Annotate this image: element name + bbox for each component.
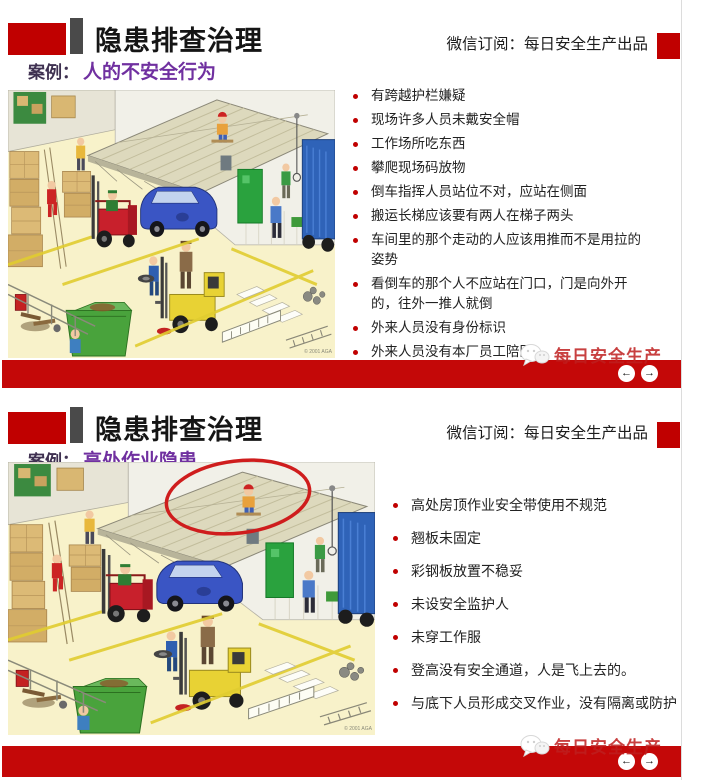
case-line: 案例： 人的不安全行为 <box>28 57 216 84</box>
warehouse-illustration: © 2001 AGA <box>8 462 375 735</box>
bullet-dot-icon <box>393 569 398 574</box>
hazard-text: 彩钢板放置不稳妥 <box>411 561 681 581</box>
header-red-block-right <box>657 33 680 59</box>
hazard-item: 车间里的那个走动的人应该用推而不是用拉的姿势 <box>345 230 650 270</box>
arrow-left-icon: ← <box>621 368 632 379</box>
hazard-item: 搬运长梯应该要有两人在梯子两头 <box>345 206 650 226</box>
hazard-item: 工作场所吃东西 <box>345 134 650 154</box>
hazard-text: 倒车指挥人员站位不对，应站在侧面 <box>371 182 650 202</box>
hazard-text: 看倒车的那个人不应站在门口，门是向外开的，往外一推人就倒 <box>371 274 650 314</box>
prev-button[interactable]: ← <box>618 365 635 382</box>
warehouse-scene-graphic <box>8 90 335 358</box>
hazard-list: 高处房顶作业安全带使用不规范 翘板未固定 彩钢板放置不稳妥 未设安全监护人 未穿… <box>385 495 681 726</box>
hazard-item: 攀爬现场码放物 <box>345 158 650 178</box>
next-button[interactable]: → <box>641 365 658 382</box>
bullet-dot-icon <box>353 166 358 171</box>
header-red-block <box>8 23 66 55</box>
bullet-dot-icon <box>393 503 398 508</box>
bullet-dot-icon <box>353 282 358 287</box>
slide-title: 隐患排查治理 <box>95 408 263 447</box>
hazard-text: 外来人员没有身份标识 <box>371 318 650 338</box>
wechat-icon <box>520 734 550 758</box>
watermark-text: 每日安全生产 <box>554 342 662 367</box>
bullet-dot-icon <box>393 701 398 706</box>
bullet-dot-icon <box>393 668 398 673</box>
bullet-dot-icon <box>353 214 358 219</box>
subscription-note: 微信订阅：每日安全生产出品 <box>430 32 648 54</box>
bullet-dot-icon <box>353 350 358 355</box>
hazard-item: 未设安全监护人 <box>385 594 681 614</box>
hazard-text: 登高没有安全通道，人是飞上去的。 <box>411 660 681 680</box>
hazard-item: 高处房顶作业安全带使用不规范 <box>385 495 681 515</box>
slide-title: 隐患排查治理 <box>95 19 263 58</box>
case-title: 人的不安全行为 <box>83 57 216 84</box>
header-gray-bar <box>70 18 83 54</box>
watermark-text: 每日安全生产 <box>554 733 662 758</box>
wechat-icon <box>520 343 550 367</box>
bullet-dot-icon <box>393 536 398 541</box>
hazard-text: 工作场所吃东西 <box>371 134 650 154</box>
illustration-credit: © 2001 AGA <box>304 349 332 355</box>
bullet-dot-icon <box>353 142 358 147</box>
hazard-item: 有跨越护栏嫌疑 <box>345 86 650 106</box>
header-red-block-right <box>657 422 680 448</box>
case-label: 案例： <box>28 58 79 83</box>
hazard-text: 未设安全监护人 <box>411 594 681 614</box>
subscription-note: 微信订阅：每日安全生产出品 <box>430 421 648 443</box>
header-red-block <box>8 412 66 444</box>
hazard-text: 车间里的那个走动的人应该用推而不是用拉的姿势 <box>371 230 650 270</box>
hazard-text: 翘板未固定 <box>411 528 681 548</box>
header-gray-bar <box>70 407 83 443</box>
hazard-item: 外来人员没有身份标识 <box>345 318 650 338</box>
hazard-text: 有跨越护栏嫌疑 <box>371 86 650 106</box>
warehouse-scene-graphic <box>8 462 375 735</box>
watermark: 每日安全生产 <box>520 733 662 758</box>
bullet-dot-icon <box>353 118 358 123</box>
hazard-item: 与底下人员形成交叉作业，没有隔离或防护 <box>385 693 681 713</box>
bullet-dot-icon <box>393 602 398 607</box>
bullet-dot-icon <box>353 94 358 99</box>
hazard-item: 现场许多人员未戴安全帽 <box>345 110 650 130</box>
slide-2: 隐患排查治理 微信订阅：每日安全生产出品 案例： 高处作业隐患 © 2001 A… <box>2 396 681 777</box>
arrow-right-icon: → <box>644 368 655 379</box>
warehouse-illustration: © 2001 AGA <box>8 90 335 358</box>
bullet-dot-icon <box>353 326 358 331</box>
hazard-item: 彩钢板放置不稳妥 <box>385 561 681 581</box>
page-right-border <box>681 0 682 780</box>
hazard-item: 未穿工作服 <box>385 627 681 647</box>
bullet-dot-icon <box>393 635 398 640</box>
slide-1: 隐患排查治理 微信订阅：每日安全生产出品 案例： 人的不安全行为 © 2001 … <box>2 8 681 389</box>
hazard-text: 与底下人员形成交叉作业，没有隔离或防护 <box>411 693 681 713</box>
bullet-dot-icon <box>353 238 358 243</box>
watermark: 每日安全生产 <box>520 342 662 367</box>
hazard-item: 看倒车的那个人不应站在门口，门是向外开的，往外一推人就倒 <box>345 274 650 314</box>
illustration-credit: © 2001 AGA <box>344 726 372 732</box>
hazard-item: 翘板未固定 <box>385 528 681 548</box>
hazard-item: 登高没有安全通道，人是飞上去的。 <box>385 660 681 680</box>
hazard-text: 现场许多人员未戴安全帽 <box>371 110 650 130</box>
hazard-text: 未穿工作服 <box>411 627 681 647</box>
hazard-item: 倒车指挥人员站位不对，应站在侧面 <box>345 182 650 202</box>
hazard-text: 攀爬现场码放物 <box>371 158 650 178</box>
bullet-dot-icon <box>353 190 358 195</box>
hazard-list: 有跨越护栏嫌疑 现场许多人员未戴安全帽 工作场所吃东西 攀爬现场码放物 倒车指挥… <box>345 86 650 366</box>
hazard-text: 高处房顶作业安全带使用不规范 <box>411 495 681 515</box>
hazard-text: 搬运长梯应该要有两人在梯子两头 <box>371 206 650 226</box>
page: 隐患排查治理 微信订阅：每日安全生产出品 案例： 人的不安全行为 © 2001 … <box>0 0 717 780</box>
